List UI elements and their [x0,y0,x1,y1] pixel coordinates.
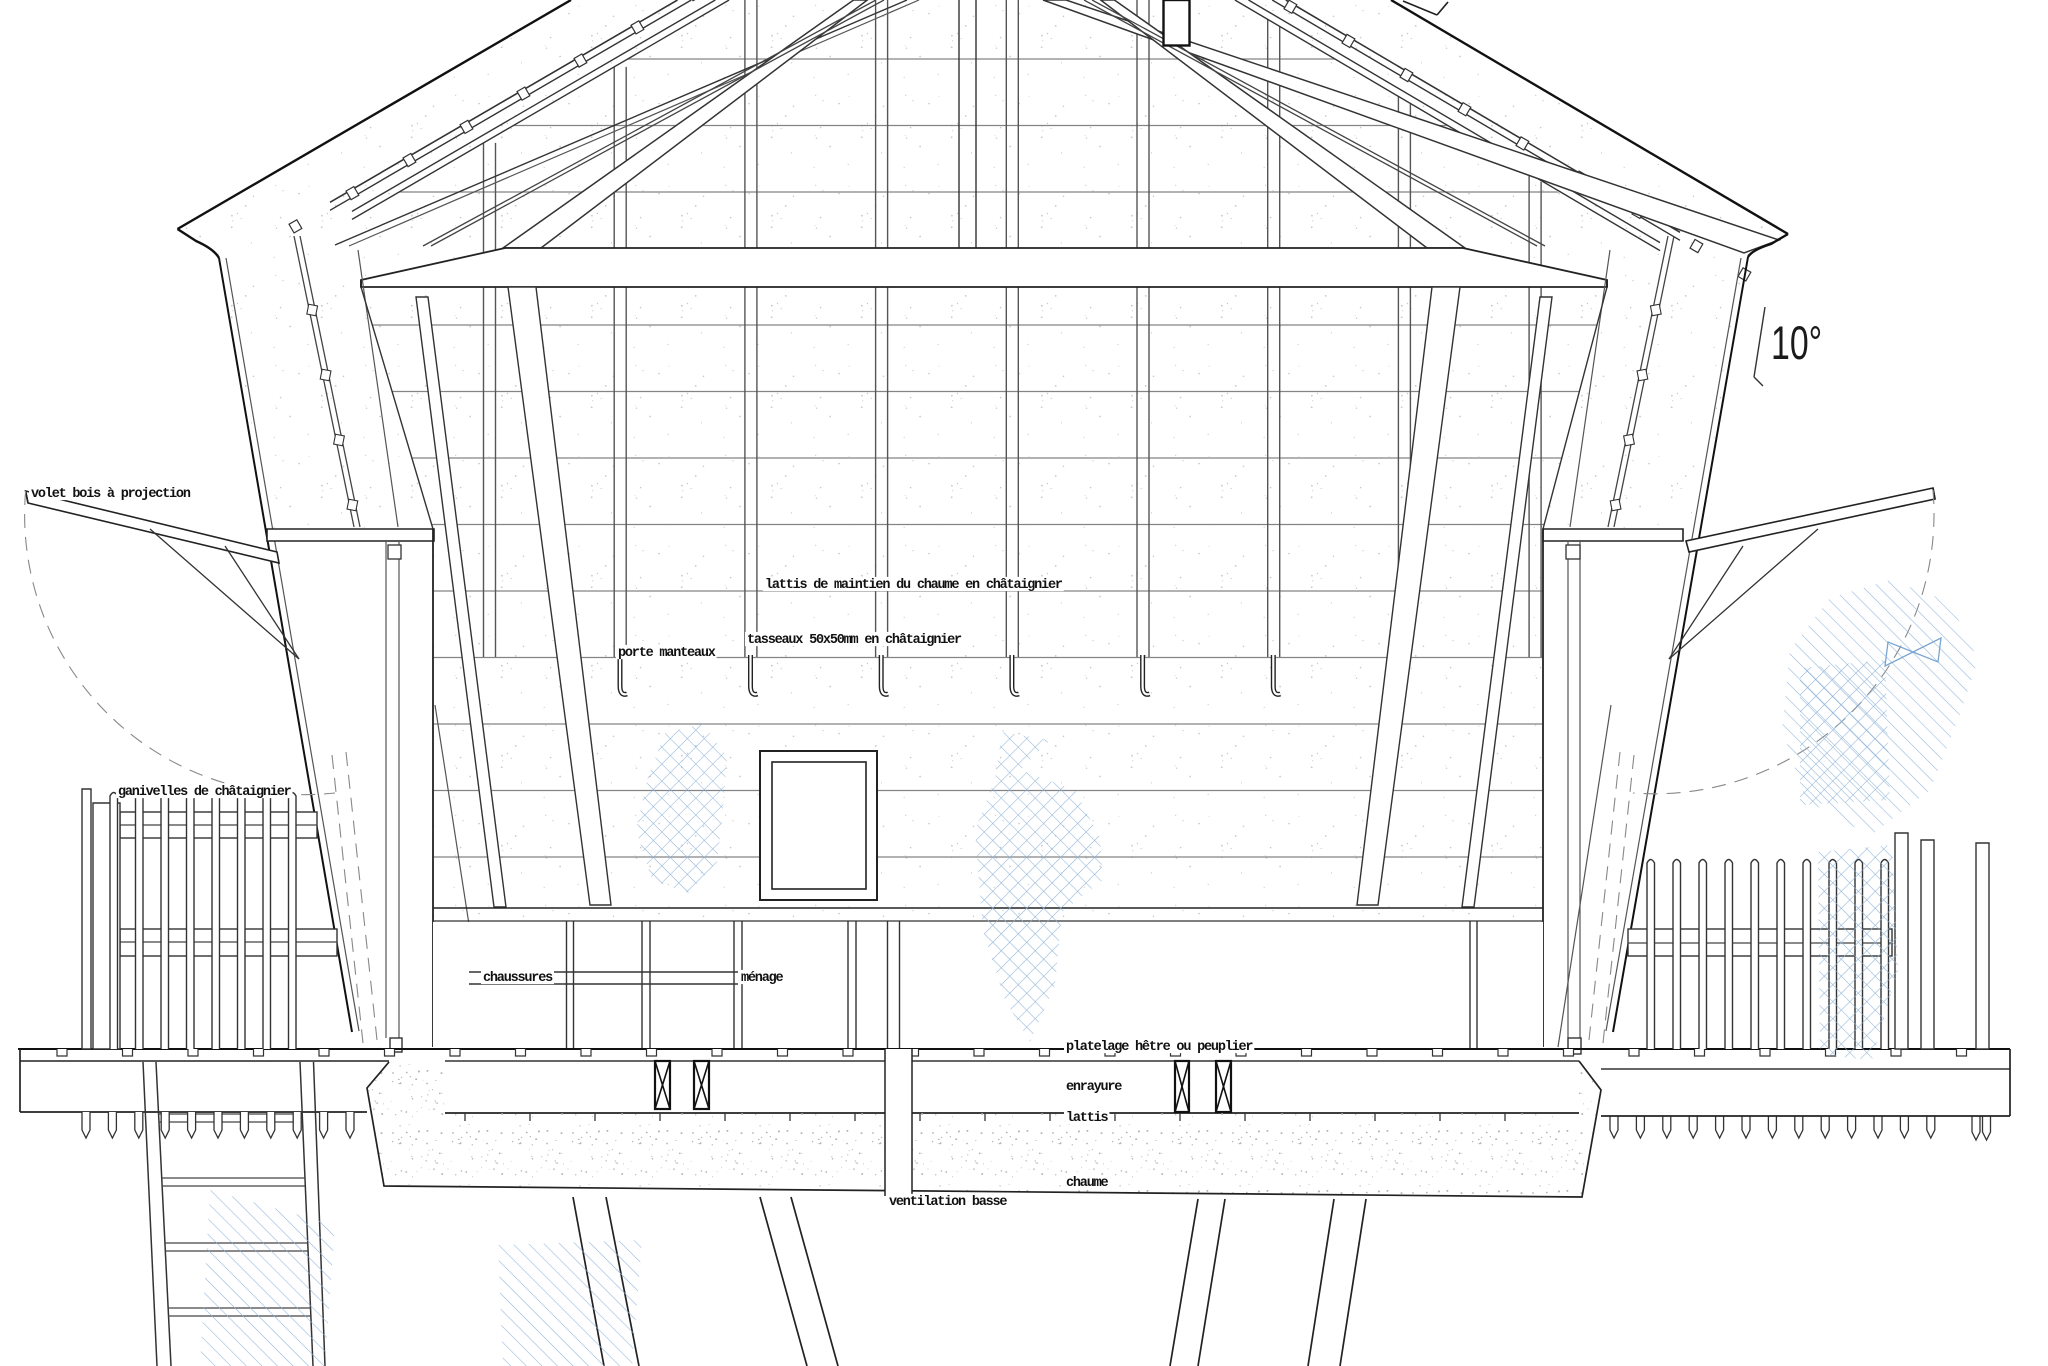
svg-text:lattis de maintien du chaume e: lattis de maintien du chaume en châtaign… [765,578,1063,593]
svg-text:ventilation basse: ventilation basse [889,1195,1007,1210]
svg-text:ménage: ménage [741,971,784,986]
svg-text:chaussures: chaussures [483,971,553,986]
svg-text:chaume: chaume [1066,1176,1109,1191]
svg-text:ganivelles de châtaignier: ganivelles de châtaignier [118,785,292,800]
svg-text:enrayure: enrayure [1066,1080,1122,1095]
svg-text:volet bois à projection: volet bois à projection [31,487,191,502]
svg-text:porte manteaux: porte manteaux [618,646,716,661]
svg-text:platelage hêtre ou peuplier: platelage hêtre ou peuplier [1066,1040,1253,1055]
svg-text:10°: 10° [1771,317,1822,370]
svg-text:lattis: lattis [1066,1111,1109,1126]
svg-text:tasseaux 50x50mm en châtaignie: tasseaux 50x50mm en châtaignier [747,633,962,648]
